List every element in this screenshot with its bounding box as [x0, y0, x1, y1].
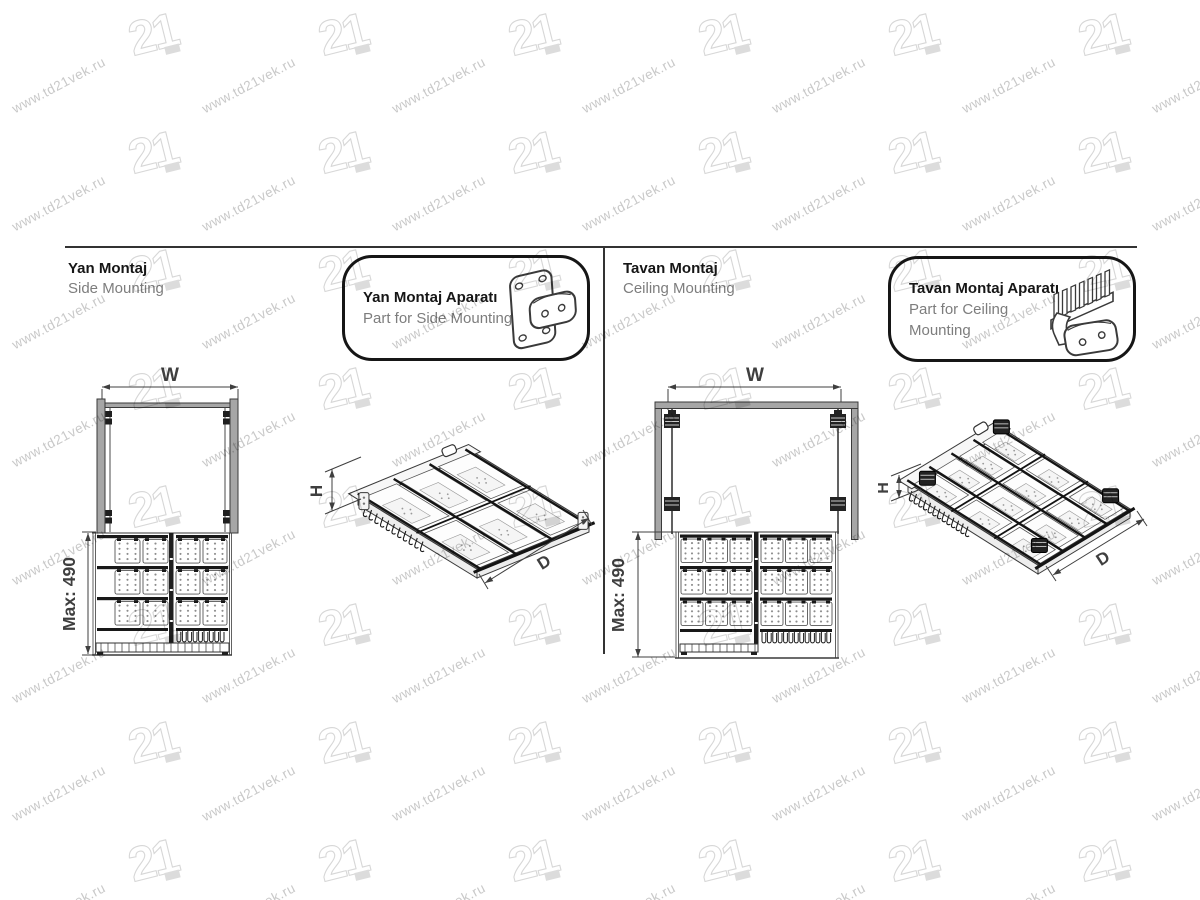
- side-title-en: Side Mounting: [68, 279, 164, 299]
- side-depth-label: D: [534, 551, 554, 574]
- side-cabinet-frame: [97, 399, 238, 533]
- ceiling-iso-view-drawing: H D: [878, 403, 1188, 623]
- side-mount-brackets: [106, 411, 230, 524]
- ceiling-height-label: H: [878, 482, 892, 494]
- side-iso-tray: [349, 444, 595, 578]
- ceiling-center-rail: [754, 532, 759, 652]
- ceiling-title-en: Ceiling Mounting: [623, 279, 735, 299]
- side-height-label: H: [307, 485, 326, 497]
- side-max-height-label: Max: 490: [59, 557, 79, 631]
- ceiling-mount-brackets: [664, 410, 846, 511]
- ceiling-mount-part-icon: [1041, 261, 1131, 361]
- side-width-label: W: [161, 365, 179, 386]
- side-front-view-drawing: W: [55, 362, 280, 667]
- ceiling-front-view-drawing: W: [605, 362, 870, 672]
- side-iso-view-drawing: H D: [295, 415, 605, 630]
- side-mount-part-icon: [493, 260, 585, 358]
- side-title-tr: Yan Montaj: [68, 259, 164, 279]
- ceiling-cabinet-frame: [655, 402, 858, 540]
- side-bottom-rail: [96, 643, 229, 655]
- ceiling-max-height-label: Max: 490: [608, 558, 628, 632]
- side-part-title-tr: Yan Montaj Aparatı: [363, 287, 513, 308]
- side-section-title: Yan Montaj Side Mounting: [68, 259, 164, 299]
- side-part-callout: Yan Montaj Aparatı Part for Side Mountin…: [342, 255, 590, 361]
- side-part-title-en: Part for Side Mounting: [363, 308, 513, 329]
- side-comb-rail: [177, 631, 224, 642]
- ceiling-comb-rail: [762, 632, 831, 643]
- top-rule: [65, 246, 1137, 248]
- side-max-dimension: [82, 532, 96, 655]
- ceiling-part-callout: Tavan Montaj Aparatı Part for Ceiling Mo…: [888, 256, 1136, 362]
- ceiling-width-label: W: [746, 365, 764, 386]
- ceiling-depth-label: D: [1093, 547, 1114, 570]
- ceiling-bottom-rail: [680, 644, 758, 655]
- ceiling-max-dimension: [632, 532, 675, 657]
- catalog-sheet: Yan Montaj Side Mounting Yan Montaj Apar…: [0, 0, 1200, 900]
- side-baskets: [97, 535, 228, 631]
- ceiling-title-tr: Tavan Montaj: [623, 259, 735, 279]
- side-w-dimension: [102, 387, 238, 399]
- diagram-layer: Yan Montaj Side Mounting Yan Montaj Apar…: [0, 0, 1200, 900]
- side-center-rail: [169, 533, 174, 652]
- ceiling-section-title: Tavan Montaj Ceiling Mounting: [623, 259, 735, 299]
